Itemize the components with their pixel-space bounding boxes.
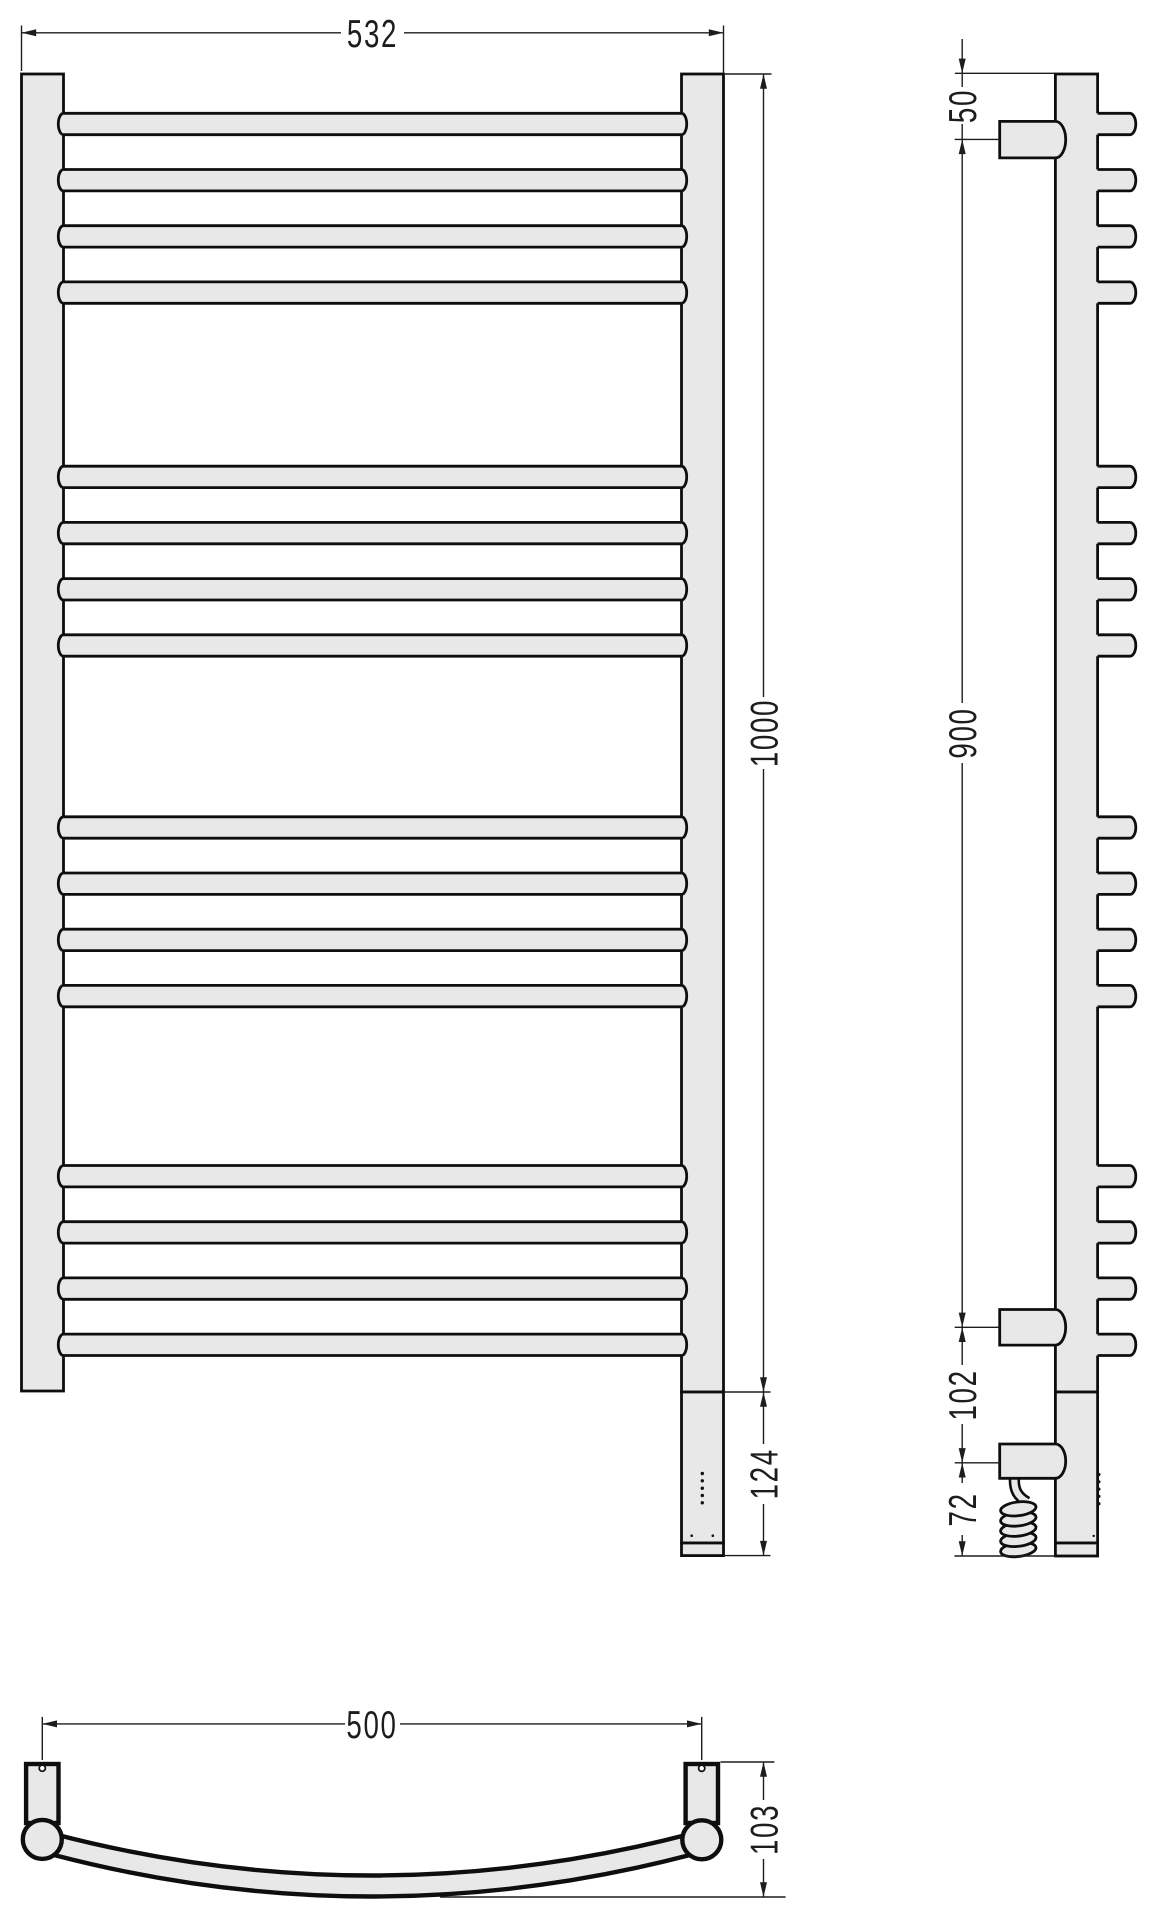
svg-text:103: 103 [744, 1804, 786, 1855]
svg-text:50: 50 [943, 89, 985, 123]
svg-text:72: 72 [943, 1492, 985, 1526]
svg-text:500: 500 [346, 1705, 397, 1747]
svg-text:102: 102 [943, 1369, 985, 1420]
svg-text:1000: 1000 [744, 699, 786, 767]
svg-text:532: 532 [347, 14, 398, 56]
svg-text:124: 124 [744, 1448, 786, 1499]
svg-text:900: 900 [943, 707, 985, 758]
